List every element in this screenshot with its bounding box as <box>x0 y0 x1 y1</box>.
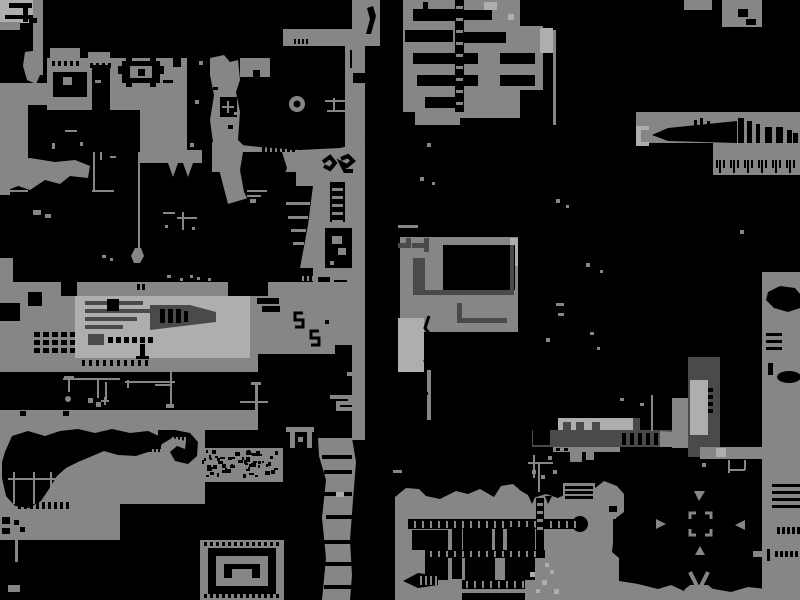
map-shape-hteeth-224-rung <box>456 90 463 93</box>
map-shape-teeth-374-tooth <box>789 160 791 173</box>
map-shape-r-26 <box>126 57 132 62</box>
map-shape-r-128 <box>85 309 157 313</box>
map-shape-hteeth-335 <box>766 333 782 350</box>
tongue <box>8 158 90 190</box>
map-shape-speck-202-dot <box>266 464 268 467</box>
room <box>500 53 535 64</box>
map-shape-r-332 <box>716 448 726 457</box>
map-shape-r-370 <box>776 127 783 143</box>
room <box>412 530 448 550</box>
map-shape-r-140 <box>136 356 149 359</box>
map-shape-r-213 <box>415 112 460 125</box>
map-shape-hteeth-224-rung <box>456 78 463 81</box>
map-shape-r-265 <box>533 455 535 478</box>
map-shape-teeth-339-tooth <box>782 527 785 534</box>
map-shape-teeth-316-tooth <box>425 576 427 585</box>
map-shape-r-291 <box>538 462 540 492</box>
map-shape-hteeth-303-rung <box>537 519 543 522</box>
map-shape-r-33 <box>187 40 210 150</box>
map-shape-hteeth-338-rung <box>772 491 800 494</box>
map-shape-r-375 <box>694 120 697 126</box>
map-shape-r-87 <box>327 110 353 112</box>
map-shape-r-179 <box>20 527 25 532</box>
map-shape-r-154 <box>170 372 172 404</box>
map-shape-r-77 <box>353 73 370 83</box>
map-shape-r-50 <box>93 152 95 192</box>
window-grid-cell <box>61 340 67 345</box>
map-shape-r-54 <box>177 217 197 219</box>
map-shape-hteeth-224-rung <box>456 66 463 69</box>
map-shape-r-99 <box>332 236 342 244</box>
map-shape-r-207 <box>232 569 252 578</box>
map-shape-r-71 <box>228 125 233 129</box>
map-shape-r-287 <box>564 448 568 451</box>
map-shape-teeth-374-tooth <box>719 160 721 173</box>
map-shape-speck-202-dot <box>217 458 220 461</box>
map-shape-r-377 <box>707 121 710 126</box>
map-shape-r-130 <box>85 325 123 329</box>
map-shape-teeth-208-tooth <box>264 542 267 546</box>
map-shape-teeth-308-tooth <box>446 551 448 557</box>
map-shape-r-325 <box>393 470 402 473</box>
map-shape-r-45 <box>33 210 41 215</box>
map-shape-r-176 <box>2 517 10 524</box>
map-shape-r-244 <box>425 290 510 295</box>
map-shape-r-256 <box>556 303 564 306</box>
map-shape-r-177 <box>2 528 10 534</box>
map-shape-teeth-175-tooth <box>42 502 45 509</box>
map-shape-r-125 <box>28 292 42 306</box>
map-shape-teeth-373-tooth <box>758 160 760 168</box>
map-shape-r-73 <box>352 0 380 30</box>
map-shape-r-86 <box>325 100 353 102</box>
stalactite <box>168 163 178 177</box>
map-shape-teeth-208-tooth <box>210 542 213 546</box>
map-shape-r-58 <box>102 255 106 258</box>
room <box>464 53 478 64</box>
map-shape-teeth-175-tooth <box>36 502 39 509</box>
map-shape-teeth-146-tooth <box>124 360 127 366</box>
map-shape-r-133 <box>160 309 165 323</box>
map-shape-hteeth-294-rung <box>565 491 593 494</box>
map-shape-speck-202-dot <box>257 454 262 456</box>
map-shape-hteeth-224 <box>456 6 463 105</box>
arrow-down <box>694 491 705 501</box>
map-shape-teeth-299-tooth <box>534 521 536 528</box>
map-shape-teeth-313-tooth <box>482 581 484 588</box>
map-shape-r-61 <box>180 278 183 281</box>
map-shape-r-46 <box>45 214 51 218</box>
map-shape-r-82 <box>265 125 273 147</box>
map-shape-r-183 <box>255 385 258 413</box>
map-shape-r-279 <box>622 433 626 445</box>
map-shape-teeth-373-tooth <box>779 160 781 168</box>
map-shape-r-68 <box>253 70 260 78</box>
map-shape-r-171 <box>50 472 52 504</box>
map-shape-teeth-111-tooth <box>312 276 314 281</box>
room <box>464 75 478 86</box>
map-shape-teeth-299-tooth <box>502 521 504 528</box>
map-shape-teeth-209-tooth <box>252 594 255 598</box>
map-shape-teeth-209-tooth <box>210 594 213 598</box>
map-shape-teeth-209-tooth <box>246 594 249 598</box>
stalactite <box>183 163 193 177</box>
map-shape-r-214 <box>540 28 553 53</box>
room <box>405 30 453 42</box>
map-shape-r-251 <box>420 392 428 395</box>
map-shape-r-108 <box>291 229 306 232</box>
map-shape-hteeth-338-rung <box>772 498 800 501</box>
map-shape-teeth-308-tooth <box>518 551 520 557</box>
map-shape-r-186 <box>290 432 295 448</box>
map-shape-hteeth-338-rung <box>772 505 800 508</box>
window-grid-cell <box>61 332 67 337</box>
room <box>465 558 495 580</box>
map-shape-speck-202-dot <box>248 467 250 469</box>
map-shape-speck-202-dot <box>274 468 278 470</box>
map-shape-r-197 <box>324 540 352 544</box>
map-shape-teeth-339-tooth <box>792 527 795 534</box>
map-shape-r-41 <box>110 156 116 158</box>
map-shape-teeth-299-tooth <box>550 521 552 528</box>
map-shape-r-243 <box>413 258 425 295</box>
map-shape-teeth-208-tooth <box>240 542 243 546</box>
map-shape-r-324 <box>609 506 617 512</box>
map-shape-teeth-208-tooth <box>258 542 261 546</box>
map-shape-r-9 <box>0 110 28 165</box>
map-shape-hteeth-335-rung <box>766 340 782 343</box>
map-shape-r-267 <box>548 456 552 460</box>
map-shape-speck-202-dot <box>218 461 223 464</box>
map-shape-r-193 <box>322 455 352 459</box>
map-shape-teeth-299-tooth <box>486 521 488 528</box>
map-shape-r-234 <box>432 182 435 185</box>
room <box>507 527 535 550</box>
map-shape-teeth-209-tooth <box>204 594 207 598</box>
world-map-canvas[interactable] <box>0 0 800 600</box>
map-shape-hteeth-329-rung <box>708 409 713 413</box>
window-grid-cell <box>52 348 58 353</box>
map-shape-speck-202-dot <box>220 457 225 459</box>
map-shape-r-153 <box>125 381 175 383</box>
map-shape-r-28 <box>126 82 132 87</box>
map-shape-r-52 <box>92 190 114 192</box>
map-shape-speck-202-dot <box>265 471 270 475</box>
map-shape-r-187 <box>307 432 312 448</box>
map-shape-r-280 <box>630 433 634 445</box>
map-shape-teeth-175-tooth <box>24 502 27 509</box>
map-shape-teeth-175-tooth <box>30 502 33 509</box>
map-shape-teeth-308-tooth <box>526 551 528 557</box>
map-shape-teeth-299 <box>414 521 576 528</box>
map-shape-r-64 <box>208 278 211 281</box>
map-shape-r-169 <box>13 472 15 504</box>
map-shape-r-283 <box>654 433 658 445</box>
map-shape-teeth-175-tooth <box>48 502 51 509</box>
map-shape-r-240 <box>406 238 411 248</box>
map-shape-teeth-15-tooth <box>58 61 61 66</box>
map-shape-teeth-174-tooth <box>156 449 158 453</box>
map-shape-teeth-209-tooth <box>222 594 225 598</box>
map-shape-teeth-208-tooth <box>246 542 249 546</box>
window-grid-cell <box>34 332 40 337</box>
map-shape-speck-202-dot <box>213 465 217 467</box>
map-shape-r-323 <box>613 519 618 553</box>
map-shape-r-113 <box>247 190 267 192</box>
map-shape-teeth-299-tooth <box>478 521 480 528</box>
map-shape-r-260 <box>597 347 600 350</box>
map-shape-r-62 <box>190 275 193 278</box>
map-shape-teeth-174-tooth <box>160 449 162 453</box>
map-shape-hteeth-303-rung <box>537 527 543 530</box>
map-shape-r-115 <box>250 199 256 203</box>
map-shape-teeth-146-tooth <box>145 360 148 366</box>
map-shape-r-79 <box>350 50 352 68</box>
map-shape-r-158 <box>88 398 93 403</box>
map-shape-r-119 <box>137 284 140 290</box>
map-shape-hteeth-224-rung <box>456 42 463 45</box>
map-shape-r-188 <box>298 437 303 442</box>
map-shape-speck-202-dot <box>258 465 260 468</box>
map-shape-c-157 <box>65 396 71 402</box>
map-shape-r-35 <box>195 100 199 104</box>
map-shape-r-6 <box>29 18 37 23</box>
map-shape-r-366 <box>738 118 744 143</box>
map-shape-speck-202-dot <box>246 459 250 462</box>
map-shape-r-184 <box>240 401 268 403</box>
map-shape-teeth-81-tooth <box>262 146 265 152</box>
map-shape-teeth-111-tooth <box>302 276 304 281</box>
map-shape-r-159 <box>96 402 101 407</box>
map-shape-speck-202-dot <box>202 460 204 464</box>
map-shape-r-368 <box>756 124 760 143</box>
dish <box>684 585 714 594</box>
map-shape-teeth-146-tooth <box>96 360 99 366</box>
map-shape-r-215 <box>484 2 497 10</box>
map-shape-teeth-175-tooth <box>18 502 21 509</box>
map-shape-speck-202-dot <box>249 473 254 475</box>
map-shape-r-360 <box>746 19 756 25</box>
map-shape-teeth-146-tooth <box>82 360 85 366</box>
map-shape-r-2 <box>0 22 20 30</box>
window-grid-cell <box>61 348 67 353</box>
map-shape-teeth-308-tooth <box>462 551 464 557</box>
target-bracket <box>690 529 696 535</box>
map-shape-teeth-146-tooth <box>110 360 113 366</box>
map-shape-teeth-313-tooth <box>514 581 516 588</box>
map-shape-r-342 <box>767 549 770 561</box>
arrow-right <box>656 519 666 529</box>
blob-a <box>23 50 43 84</box>
map-shape-r-56 <box>165 225 168 228</box>
map-shape-r-53 <box>163 212 175 214</box>
map-shape-r-139 <box>140 344 145 358</box>
map-shape-r-371 <box>787 130 792 143</box>
map-shape-speck-202-dot <box>212 467 217 469</box>
map-shape-teeth-313-tooth <box>474 581 476 588</box>
map-shape-teeth-373-tooth <box>765 160 767 168</box>
map-shape-r-352 <box>744 460 746 470</box>
map-shape-teeth-111 <box>302 276 314 281</box>
map-shape-r-322 <box>545 563 549 567</box>
map-shape-teeth-373-tooth <box>793 160 795 168</box>
map-shape-teeth-373-tooth <box>723 160 725 168</box>
map-shape-teeth-308-tooth <box>510 551 512 557</box>
map-shape-r-170 <box>33 472 35 504</box>
map-shape-hteeth-224-rung <box>456 18 463 21</box>
map-shape-speck-202-dot <box>204 458 206 461</box>
map-shape-teeth-308-tooth <box>470 551 472 557</box>
map-shape-hteeth-97-rung <box>332 212 343 215</box>
map-shape-r-55 <box>182 212 184 230</box>
map-shape-r-235 <box>398 225 418 228</box>
map-shape-teeth-308-tooth <box>502 551 504 557</box>
map-shape-teeth-138-tooth <box>108 337 113 343</box>
map-shape-teeth-15-tooth <box>52 61 55 66</box>
map-shape-r-372 <box>793 133 798 143</box>
map-shape-r-148 <box>64 376 74 379</box>
map-shape-speck-202-dot <box>275 453 278 455</box>
wall-strip <box>352 345 365 440</box>
map-shape-hteeth-97-rung <box>332 196 343 199</box>
map-shape-r-245 <box>510 245 514 295</box>
map-shape-r-11 <box>28 105 48 143</box>
map-shape-teeth-308-tooth <box>438 551 440 557</box>
map-shape-r-318 <box>542 580 547 585</box>
map-shape-r-27 <box>150 57 156 62</box>
map-shape-teeth-299-tooth <box>518 521 520 528</box>
map-shape-teeth-299-tooth <box>430 521 432 528</box>
map-shape-speck-202-dot <box>253 461 257 463</box>
map-shape-teeth-209-tooth <box>264 594 267 598</box>
map-shape-r-199 <box>324 585 352 589</box>
map-shape-speck-202-dot <box>210 458 212 460</box>
map-shape-teeth-373-tooth <box>744 160 746 168</box>
map-shape-r-36 <box>190 143 194 147</box>
map-shape-r-5 <box>5 15 33 19</box>
room <box>463 528 492 552</box>
map-shape-teeth-308-tooth <box>486 551 488 557</box>
map-shape-r-276 <box>550 420 558 428</box>
map-shape-r-278 <box>533 423 550 445</box>
map-shape-teeth-373-tooth <box>716 160 718 168</box>
map-shape-teeth-373-tooth <box>772 160 774 168</box>
map-shape-speck-202-dot <box>228 457 232 460</box>
map-shape-r-252 <box>556 199 560 203</box>
map-shape-teeth-173-tooth <box>184 437 186 442</box>
map-shape-teeth-299-tooth <box>462 521 464 528</box>
map-shape-r-354 <box>702 463 706 467</box>
map-shape-r-63 <box>197 277 200 280</box>
vine <box>138 152 140 250</box>
map-shape-teeth-209-tooth <box>276 594 279 598</box>
map-shape-teeth-313-tooth <box>522 581 524 588</box>
map-shape-hteeth-303-rung <box>537 503 543 506</box>
map-shape-r-109 <box>293 242 304 245</box>
map-shape-r-268 <box>532 470 536 474</box>
map-shape-r-255 <box>600 270 603 273</box>
map-shape-r-91 <box>234 112 237 115</box>
ledge <box>283 29 380 46</box>
map-shape-teeth-146-tooth <box>117 360 120 366</box>
map-shape-e-337 <box>777 371 800 383</box>
map-shape-r-136 <box>184 311 188 322</box>
map-shape-teeth-146-tooth <box>131 360 134 366</box>
map-shape-r-38 <box>80 142 83 146</box>
room <box>413 9 455 21</box>
map-shape-r-336 <box>768 363 773 375</box>
map-shape-speck-202-dot <box>255 475 258 477</box>
map-shape-r-83 <box>290 136 296 150</box>
map-shape-teeth-81-tooth <box>277 146 280 152</box>
map-shape-r-149 <box>68 380 70 392</box>
map-shape-teeth-313-tooth <box>498 581 500 588</box>
map-shape-teeth-208-tooth <box>276 542 279 546</box>
map-shape-hteeth-338-rung <box>772 484 800 487</box>
map-shape-r-37 <box>65 130 77 132</box>
map-shape-teeth-340-tooth <box>785 551 788 557</box>
map-shape-teeth-299-tooth <box>454 521 456 528</box>
map-shape-r-161 <box>104 397 106 405</box>
map-shape-teeth-208-tooth <box>222 542 225 546</box>
map-shape-teeth-374-tooth <box>733 160 735 173</box>
map-shape-teeth-209-tooth <box>234 594 237 598</box>
room <box>413 53 455 64</box>
map-shape-r-285 <box>553 447 620 452</box>
map-shape-teeth-173-tooth <box>172 437 174 442</box>
map-shape-r-196 <box>326 515 352 519</box>
map-shape-r-29 <box>150 82 156 87</box>
map-shape-teeth-175-tooth <box>66 502 69 509</box>
map-shape-speck-202-dot <box>215 456 218 458</box>
map-shape-r-369 <box>765 127 772 143</box>
map-shape-hteeth-224-rung <box>456 30 463 33</box>
map-shape-hteeth-97-rung <box>332 204 343 207</box>
map-shape-r-286 <box>556 448 560 451</box>
map-shape-r-288 <box>570 452 582 462</box>
map-shape-teeth-81-tooth <box>282 146 285 152</box>
map-shape-hteeth-294-rung <box>565 486 593 489</box>
map-shape-teeth-340-tooth <box>775 551 778 557</box>
map-shape-teeth-299-tooth <box>494 521 496 528</box>
map-shape-r-231 <box>553 30 556 125</box>
map-shape-r-266 <box>528 462 553 464</box>
map-shape-r-328 <box>690 380 708 435</box>
map-shape-speck-202-dot <box>235 454 240 456</box>
map-shape-teeth-316-tooth <box>430 576 432 585</box>
map-shape-speck-202-dot <box>207 465 211 467</box>
map-shape-teeth-339-tooth <box>777 527 780 534</box>
window-grid-cell <box>43 340 49 345</box>
map-shape-hteeth-294-rung <box>565 496 593 499</box>
map-shape-speck-202-dot <box>238 460 243 463</box>
map-shape-r-57 <box>192 227 195 230</box>
map-shape-r-90 <box>227 101 229 113</box>
map-shape-hteeth-329-rung <box>708 402 713 406</box>
map-shape-teeth-175-tooth <box>60 502 63 509</box>
map-shape-r-261 <box>620 398 624 401</box>
pipe-glyph <box>330 397 352 409</box>
map-shape-r-88 <box>333 98 335 111</box>
map-shape-hteeth-224-rung <box>456 102 463 105</box>
dark-room <box>443 245 515 290</box>
map-shape-r-216 <box>508 14 514 20</box>
map-shape-r-156 <box>166 404 174 408</box>
table <box>286 427 314 432</box>
map-shape-teeth-373-tooth <box>730 160 732 168</box>
map-shape-teeth-208-tooth <box>252 542 255 546</box>
map-shape-r-145 <box>325 320 329 324</box>
